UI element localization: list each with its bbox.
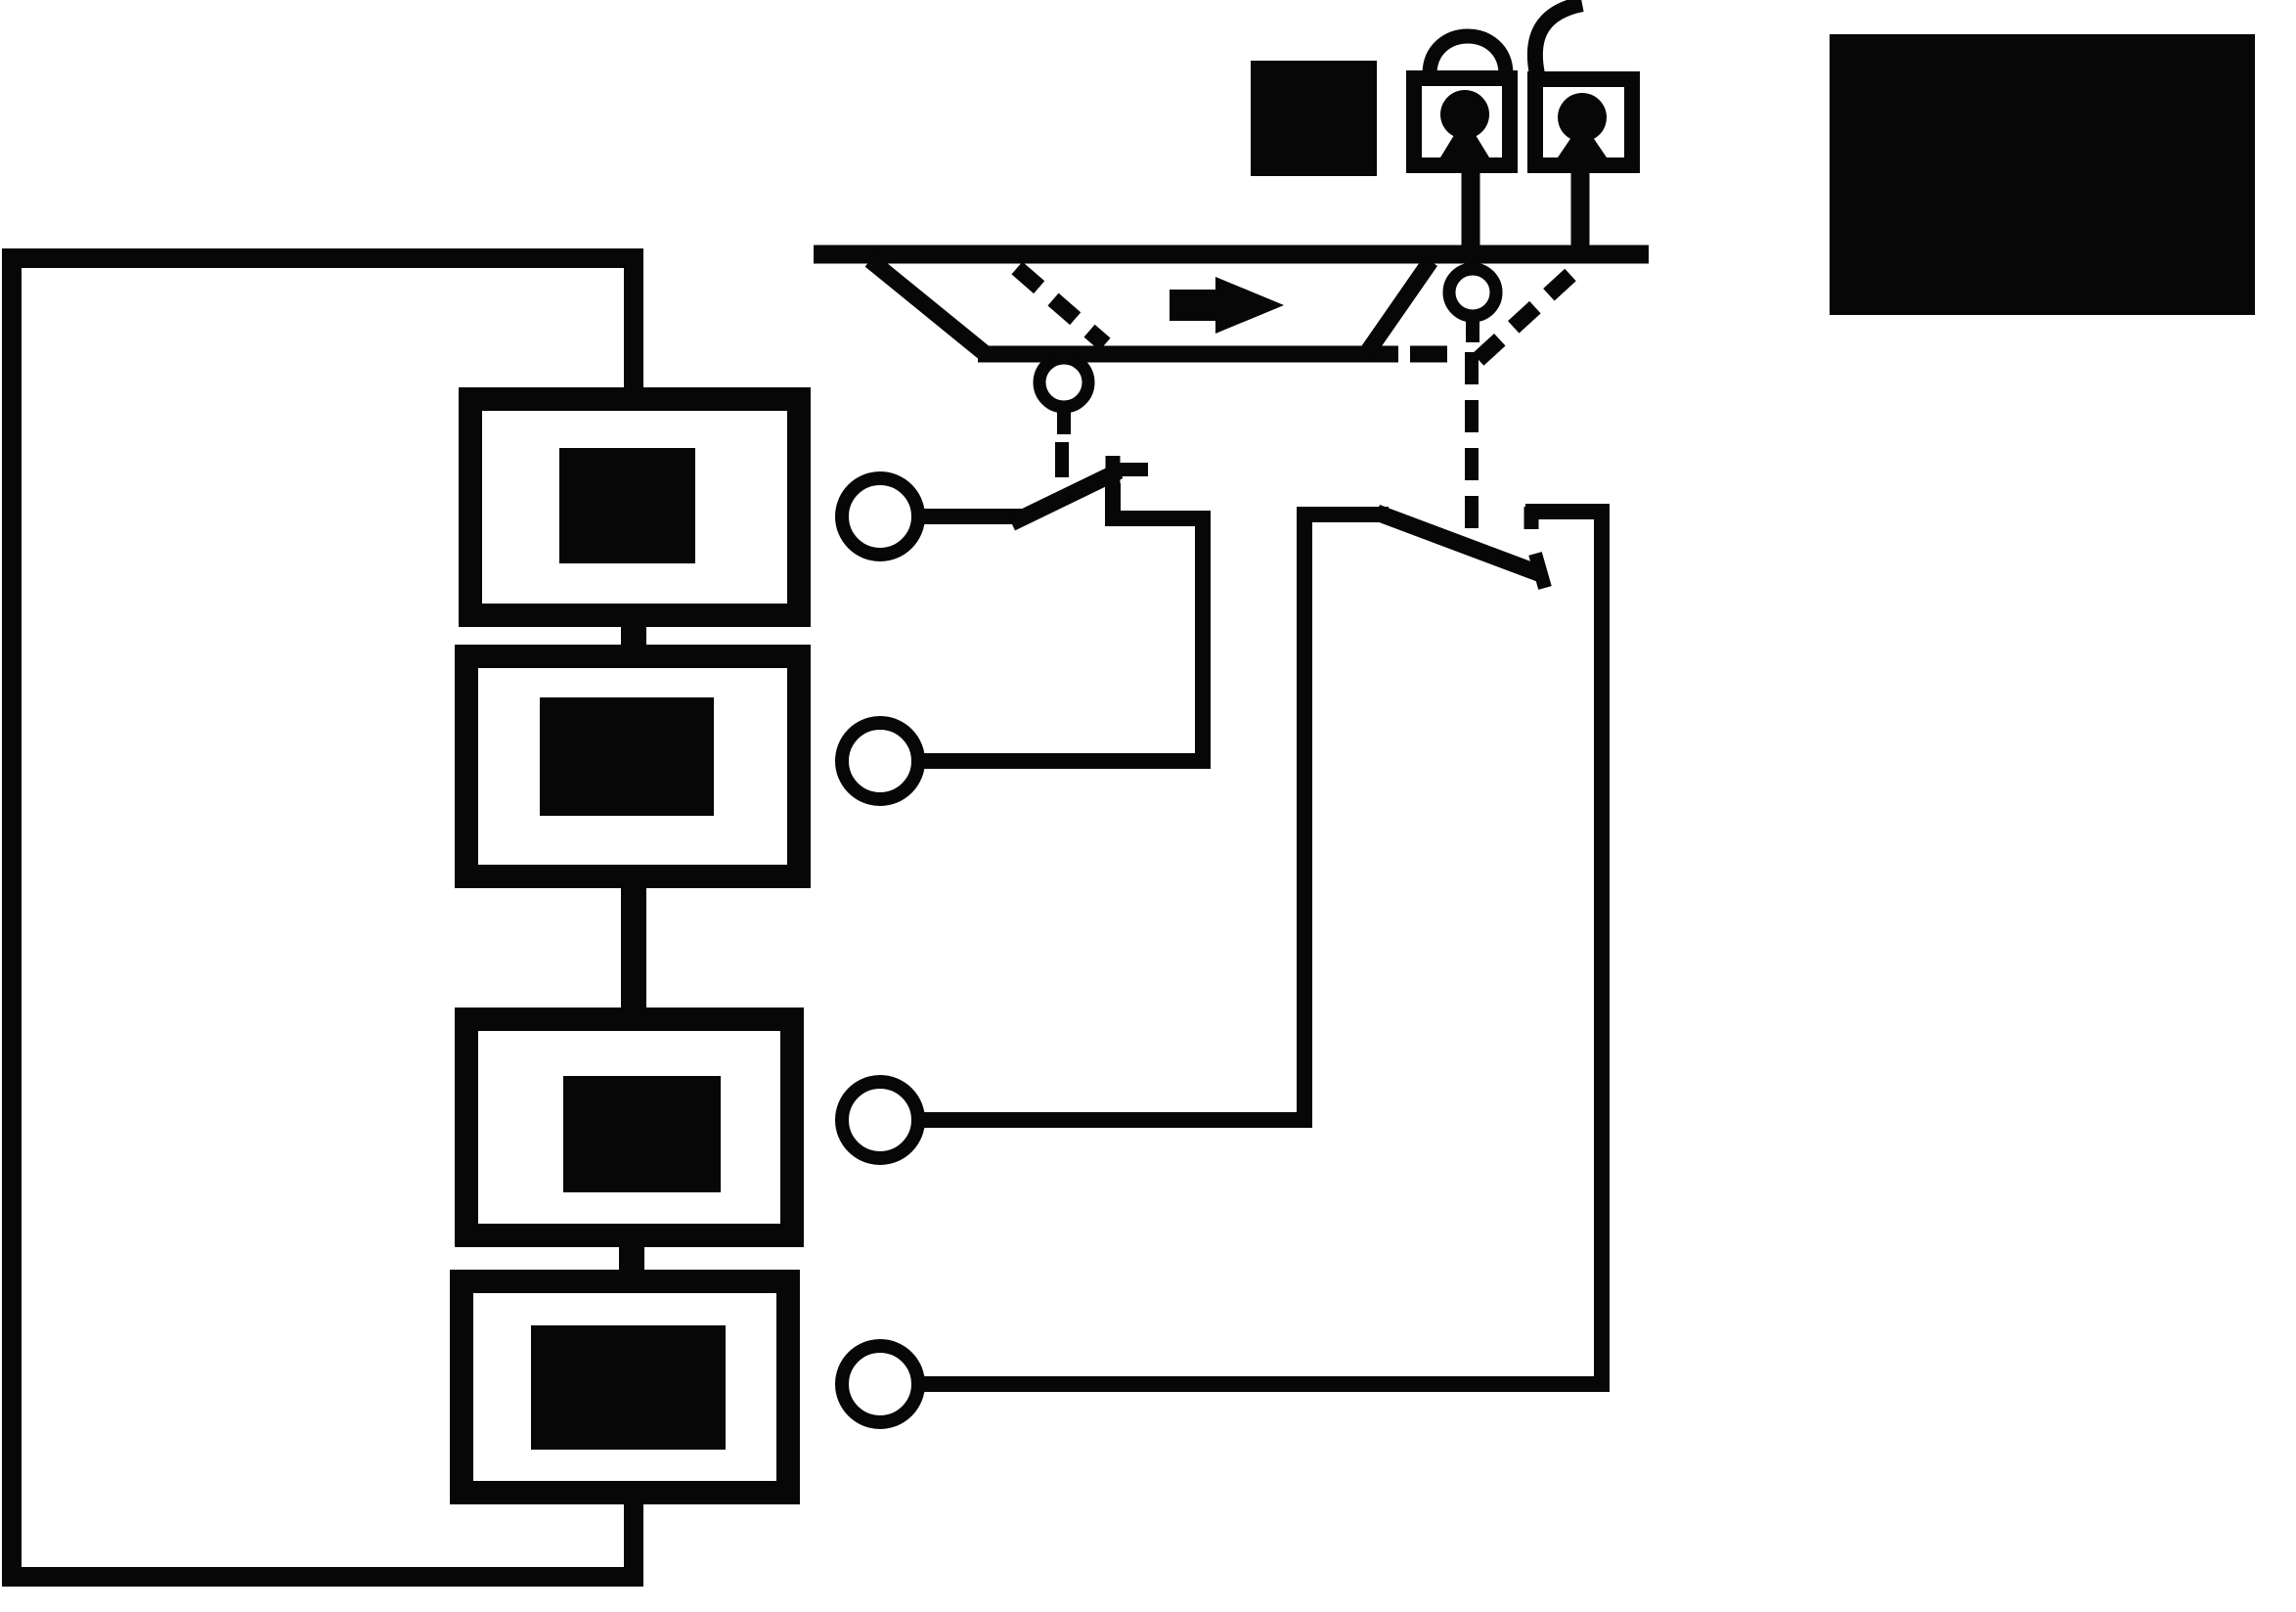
switch2-blade-tip-contact <box>1535 554 1545 588</box>
closed-padlock-keyhole-icon <box>1440 90 1489 157</box>
circuit-diagram <box>0 0 2296 1612</box>
pivot-roller-1 <box>1039 358 1088 407</box>
component-core-1 <box>559 448 695 563</box>
open-padlock-keyhole-icon <box>1558 93 1607 157</box>
component-core-4 <box>531 1325 726 1450</box>
pivot-roller-2 <box>1449 269 1496 316</box>
circuit-diagram-page <box>0 0 2296 1612</box>
component-core-3 <box>563 1076 721 1192</box>
component-core-2 <box>540 697 714 816</box>
small-black-panel <box>1251 61 1377 176</box>
large-black-panel <box>1830 34 2255 315</box>
